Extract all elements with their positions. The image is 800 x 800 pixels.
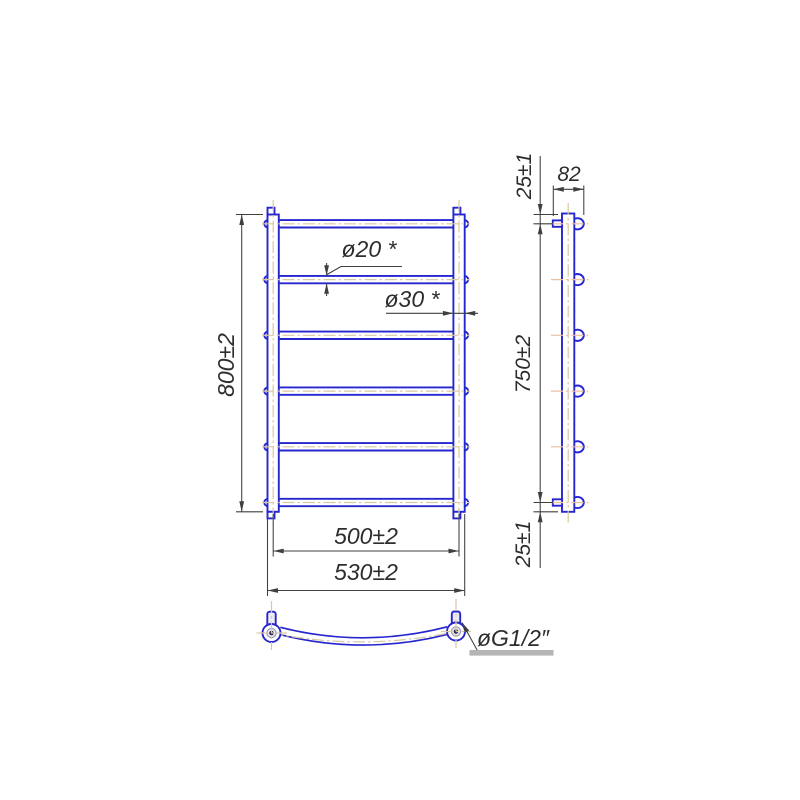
mount-span-label: 750±2 <box>512 335 535 394</box>
front-overall-width-label: 530±2 <box>334 559 398 585</box>
bottom-offset-label: 25±1 <box>512 521 535 569</box>
thread-label: øG1/2″ <box>477 625 550 651</box>
post-diameter-label: ø30 * <box>385 286 441 312</box>
depth-label: 82 <box>557 163 581 186</box>
front-height-label: 800±2 <box>213 333 239 397</box>
rung-diameter-label: ø20 * <box>342 236 398 262</box>
sheet-background <box>0 0 800 800</box>
drawing-canvas: 800±2 500±2 530±2 ø20 * ø30 * <box>0 0 800 800</box>
top-offset-label: 25±1 <box>513 153 536 201</box>
front-inner-width-label: 500±2 <box>334 523 398 549</box>
technical-drawing-sheet: 800±2 500±2 530±2 ø20 * ø30 * <box>0 0 800 800</box>
